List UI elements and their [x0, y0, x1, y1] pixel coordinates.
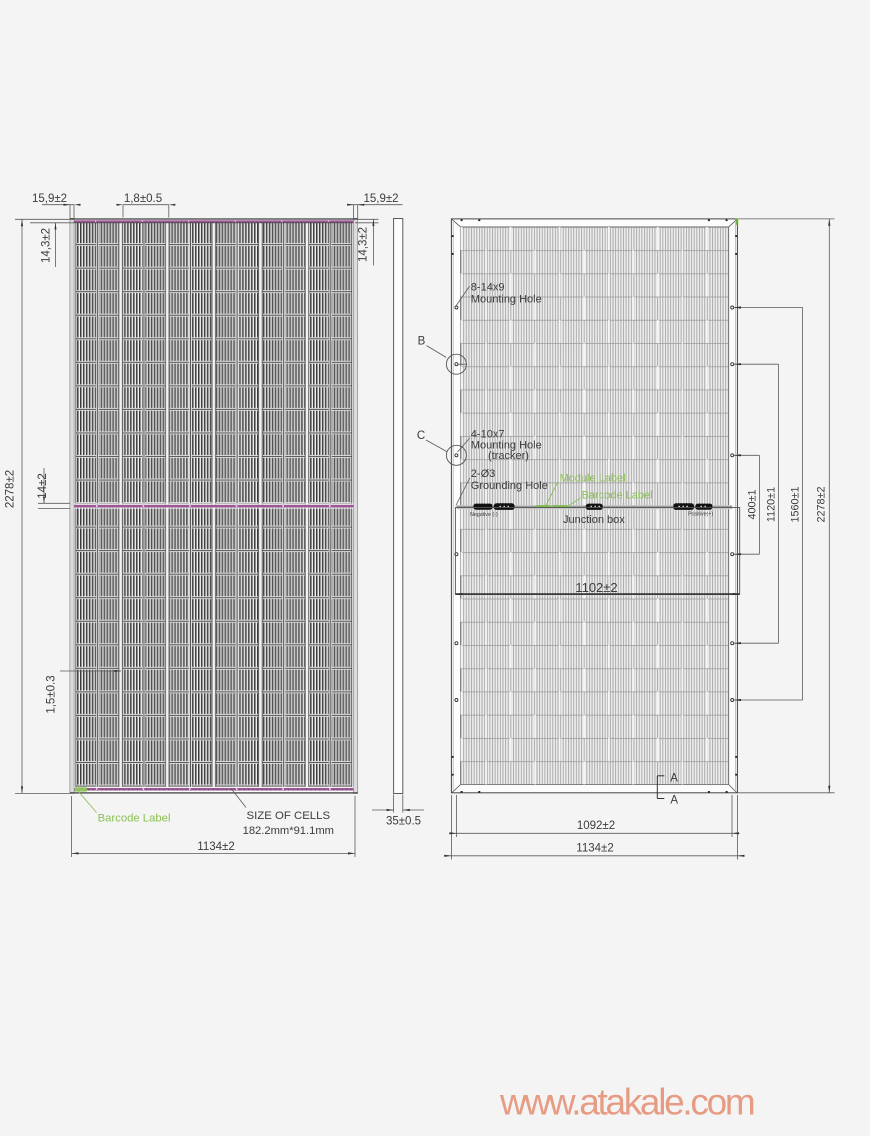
svg-text:14,3±2: 14,3±2 [358, 227, 370, 262]
svg-text:www.atakale.com: www.atakale.com [499, 1082, 754, 1123]
svg-text:2278±2: 2278±2 [5, 470, 17, 508]
svg-text:C: C [417, 430, 425, 442]
svg-text:14±2: 14±2 [37, 473, 49, 499]
svg-text:Grounding Hole: Grounding Hole [471, 480, 548, 492]
svg-text:8-14x9: 8-14x9 [471, 282, 505, 294]
svg-text:182.2mm*91.1mm: 182.2mm*91.1mm [243, 825, 334, 837]
svg-text:1560±1: 1560±1 [790, 487, 802, 523]
svg-text:Mounting Hole: Mounting Hole [471, 293, 542, 305]
svg-text:1102±2: 1102±2 [575, 580, 617, 595]
svg-text:1120±1: 1120±1 [766, 487, 778, 522]
svg-text:Positive(+): Positive(+) [688, 512, 713, 518]
svg-text:A: A [670, 795, 678, 807]
svg-text:SIZE OF CELLS: SIZE OF CELLS [247, 810, 331, 822]
svg-text:35±0.5: 35±0.5 [386, 816, 421, 828]
svg-text:Module Label: Module Label [560, 473, 626, 485]
svg-text:Barcode Label: Barcode Label [582, 489, 653, 501]
svg-text:Barcode Label: Barcode Label [98, 813, 171, 825]
svg-text:Negative (-): Negative (-) [470, 512, 498, 518]
svg-text:1134±2: 1134±2 [197, 841, 234, 853]
svg-text:Junction box: Junction box [563, 514, 625, 526]
svg-text:1092±2: 1092±2 [577, 820, 615, 832]
svg-text:14,3±2: 14,3±2 [41, 228, 53, 263]
svg-text:A: A [670, 773, 678, 785]
svg-text:15,9±2: 15,9±2 [32, 193, 67, 205]
svg-text:1,8±0.5: 1,8±0.5 [124, 193, 162, 205]
svg-text:400±1: 400±1 [747, 490, 759, 520]
svg-text:1134±2: 1134±2 [576, 842, 613, 854]
svg-text:1,5±0.3: 1,5±0.3 [46, 675, 58, 713]
svg-text:15,9±2: 15,9±2 [363, 193, 398, 205]
svg-text:(tracker): (tracker) [488, 450, 529, 462]
svg-text:B: B [418, 336, 426, 348]
svg-text:2278±2: 2278±2 [816, 487, 828, 523]
svg-text:2-Ø3: 2-Ø3 [471, 468, 495, 480]
